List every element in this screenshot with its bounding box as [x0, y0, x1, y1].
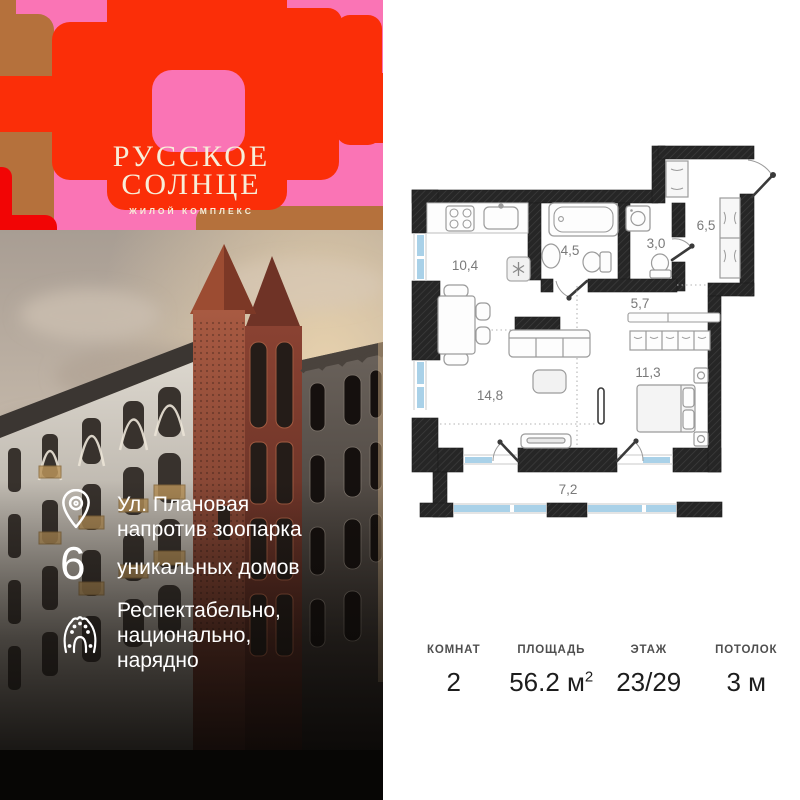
room-label-bathroom: 4,5 — [561, 243, 580, 258]
bedroom-door-leaf — [598, 388, 604, 424]
feature-line: национально, — [117, 623, 281, 648]
feature-houses-text: уникальных домов — [117, 555, 300, 580]
feature-line: напротив зоопарка — [117, 517, 302, 542]
stat-floor: ЭТАЖ 23/29 — [600, 644, 698, 698]
corridor-sideboard — [628, 313, 720, 322]
bathroom-fixtures — [542, 203, 618, 272]
kokoshnik-icon — [60, 610, 100, 656]
room-label-kitchen: 10,4 — [452, 258, 479, 273]
feature-style-text: Респектабельно, национально, нарядно — [117, 598, 281, 673]
bottom-shadow — [0, 750, 383, 800]
apartment-stats: КОМНАТ 2 ПЛОЩАДЬ 56.2 м2 ЭТАЖ 23/29 ПОТО… — [405, 644, 795, 698]
brand-logo: РУССКОЕ СОЛНЦЕ ЖИЛОЙ КОМПЛЕКС — [0, 143, 383, 216]
room-label-balcony: 7,2 — [559, 482, 578, 497]
stat-value: 3 м — [698, 667, 796, 698]
stat-value: 2 — [405, 667, 503, 698]
stat-value: 23/29 — [600, 667, 698, 698]
room-label-corridor: 5,7 — [631, 296, 650, 311]
room-label-living: 14,8 — [477, 388, 503, 403]
stat-value: 56.2 м2 — [503, 667, 601, 698]
feature-style: Респектабельно, национально, нарядно — [60, 598, 100, 661]
feature-line: нарядно — [117, 648, 281, 673]
brand-title-line2: СОЛНЦЕ — [0, 171, 383, 199]
houses-count: 6 — [60, 542, 86, 584]
area-superscript: 2 — [585, 668, 593, 685]
listing-card: РУССКОЕ СОЛНЦЕ ЖИЛОЙ КОМПЛЕКС — [0, 0, 800, 800]
location-pin-icon — [60, 489, 92, 529]
room-label-bedroom: 11,3 — [635, 365, 660, 380]
brand-title-line1: РУССКОЕ — [0, 143, 383, 171]
bedroom-furniture — [630, 331, 710, 446]
kitchen-fixtures — [427, 203, 530, 281]
stat-label: ПЛОЩАДЬ — [503, 644, 601, 656]
feature-location: Ул. Плановая напротив зоопарка — [60, 489, 92, 534]
feature-line: уникальных домов — [117, 555, 300, 580]
floor-plan-drawing: 10,4 4,5 3,0 6,5 5,7 14,8 11,3 7,2 — [405, 140, 797, 532]
stat-area: ПЛОЩАДЬ 56.2 м2 — [503, 644, 601, 698]
brand-header: РУССКОЕ СОЛНЦЕ ЖИЛОЙ КОМПЛЕКС — [0, 0, 383, 230]
room-label-wc: 3,0 — [647, 236, 666, 251]
room-label-hallway: 6,5 — [697, 218, 716, 233]
stat-ceiling: ПОТОЛОК 3 м — [698, 644, 796, 698]
stat-label: ЭТАЖ — [600, 644, 698, 656]
stat-rooms: КОМНАТ 2 — [405, 644, 503, 698]
brand-photo-panel: РУССКОЕ СОЛНЦЕ ЖИЛОЙ КОМПЛЕКС — [0, 0, 383, 800]
feature-location-text: Ул. Плановая напротив зоопарка — [117, 492, 302, 542]
feature-line: Ул. Плановая — [117, 492, 302, 517]
feature-houses: 6 уникальных домов — [60, 542, 86, 584]
stat-label: ПОТОЛОК — [698, 644, 796, 656]
feature-line: Респектабельно, — [117, 598, 281, 623]
floor-plan: 10,4 4,5 3,0 6,5 5,7 14,8 11,3 7,2 — [405, 140, 797, 532]
brand-subtitle: ЖИЛОЙ КОМПЛЕКС — [0, 206, 383, 216]
stat-label: КОМНАТ — [405, 644, 503, 656]
